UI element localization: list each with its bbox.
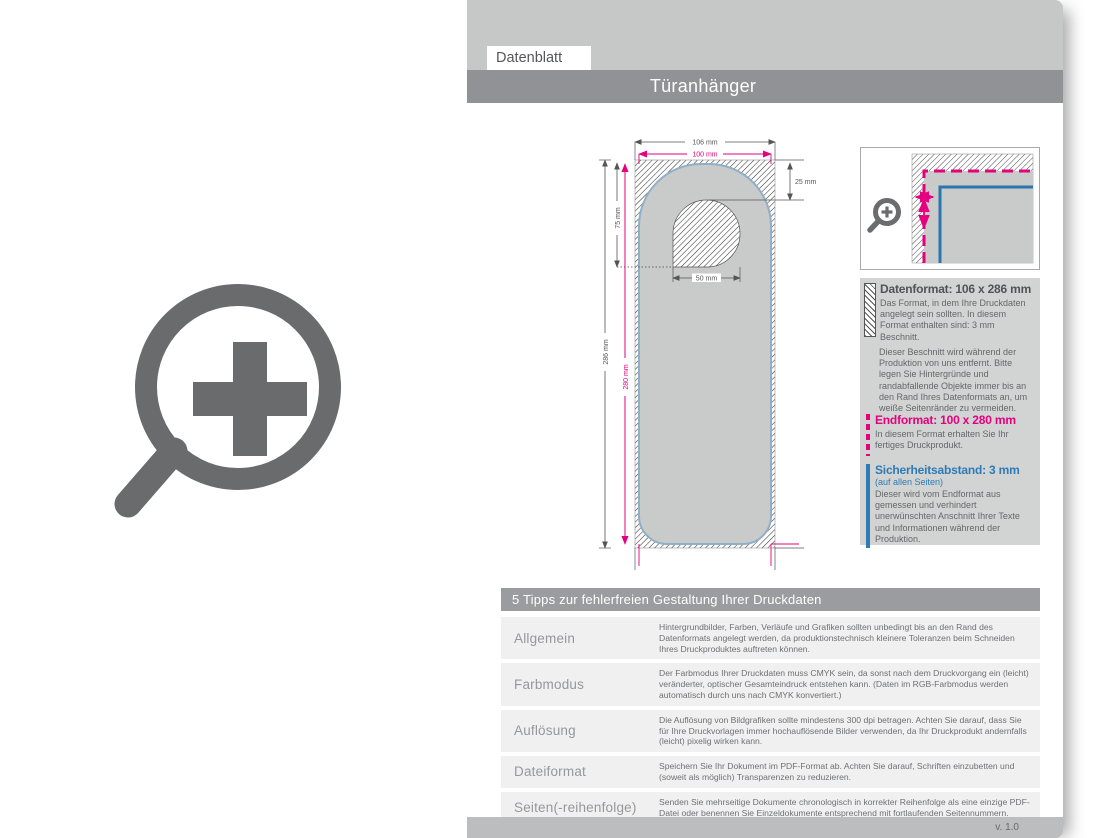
zoom-plus-icon (98, 232, 368, 552)
version-label: v. 1.0 (995, 822, 1019, 833)
dim-label-25: 25 mm (795, 179, 817, 186)
datenformat-body: Das Format, in dem Ihre Druckdaten angel… (880, 298, 1034, 343)
tips-table-title: 5 Tipps zur fehlerfreien Gestaltung Ihre… (501, 588, 1040, 611)
sicherheitsabstand-body: Dieser wird vom Endformat aus gemessen u… (875, 489, 1034, 545)
row-label-seitenreihenfolge: Seiten(-reihenfolge) (501, 800, 659, 815)
bleed-hatch-swatch-icon (864, 283, 876, 337)
beschnitt-note: Dieser Beschnitt wird während der Produk… (879, 347, 1031, 414)
row-text-dateiformat: Speichern Sie Ihr Dokument im PDF-Format… (659, 756, 1040, 788)
dim-label-286: 286 mm (603, 339, 610, 364)
endformat-body: In diesem Format erhalten Sie Ihr fertig… (875, 429, 1034, 451)
beschnitt-note-block: Dieser Beschnitt wird während der Produk… (879, 345, 1031, 414)
handle-hole (673, 200, 740, 267)
tips-table: 5 Tipps zur fehlerfreien Gestaltung Ihre… (501, 588, 1040, 827)
row-label-aufloesung: Auflösung (501, 723, 659, 738)
table-row: Auflösung Die Auflösung von Bildgrafiken… (501, 710, 1040, 752)
dim-label-75: 75 mm (615, 207, 622, 229)
corner-detail-drawing (861, 148, 1039, 269)
blue-solid-bar-icon (866, 464, 870, 548)
endformat-title: Endformat: 100 x 280 mm (875, 414, 1034, 427)
datasheet-canvas: Datenblatt Türanhänger (0, 0, 1117, 838)
dim-label-100: 100 mm (692, 152, 717, 159)
dim-label-106: 106 mm (692, 140, 717, 147)
magenta-dashed-bar-icon (866, 414, 870, 456)
table-row: Allgemein Hintergrundbilder, Farben, Ver… (501, 617, 1040, 659)
dim-label-280: 280 mm (623, 364, 630, 389)
zoom-plus-icon-small (870, 201, 899, 231)
door-hanger-diagram: 106 mm 100 mm 25 mm 75 mm 286 mm 280 mm (597, 130, 827, 582)
product-title: Türanhänger (650, 76, 756, 96)
corner-detail-panel (860, 147, 1040, 270)
row-label-allgemein: Allgemein (501, 631, 659, 646)
datenformat-title: Datenformat: 106 x 286 mm (880, 283, 1034, 296)
datenblatt-tab-label: Datenblatt (496, 50, 562, 66)
endformat-block: Endformat: 100 x 280 mm In diesem Format… (866, 414, 1034, 456)
row-text-farbmodus: Der Farbmodus Ihrer Druckdaten muss CMYK… (659, 663, 1040, 705)
product-title-bar: Türanhänger (467, 70, 1063, 103)
dim-label-50: 50 mm (696, 276, 718, 283)
sicherheitsabstand-title: Sicherheitsabstand: 3 mm (875, 464, 1034, 477)
datasheet-page: Datenblatt Türanhänger (467, 0, 1063, 838)
sicherheitsabstand-block: Sicherheitsabstand: 3 mm (auf allen Seit… (866, 464, 1034, 548)
row-text-allgemein: Hintergrundbilder, Farben, Verläufe und … (659, 617, 1040, 659)
datenformat-block: Datenformat: 106 x 286 mm Das Format, in… (864, 283, 1034, 343)
datenblatt-tab: Datenblatt (487, 46, 591, 70)
format-info-panel: Datenformat: 106 x 286 mm Das Format, in… (860, 278, 1040, 545)
table-row: Dateiformat Speichern Sie Ihr Dokument i… (501, 756, 1040, 788)
sicherheitsabstand-subtitle: (auf allen Seiten) (875, 477, 1034, 487)
row-label-dateiformat: Dateiformat (501, 764, 659, 779)
row-label-farbmodus: Farbmodus (501, 677, 659, 692)
row-text-aufloesung: Die Auflösung von Bildgrafiken sollte mi… (659, 710, 1040, 752)
version-footer: v. 1.0 (467, 817, 1063, 838)
table-row: Farbmodus Der Farbmodus Ihrer Druckdaten… (501, 663, 1040, 705)
